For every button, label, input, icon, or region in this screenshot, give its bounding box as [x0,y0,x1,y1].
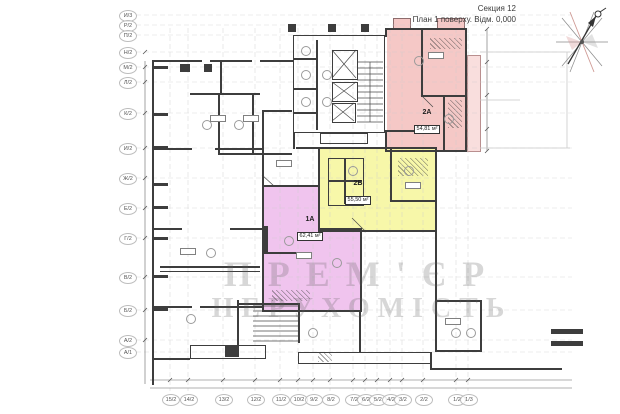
wall-segment [262,112,264,310]
apartment-area: 62,41 м² [297,232,324,241]
axis-label-left: В/2 [119,272,137,284]
room-area-box [276,160,292,167]
axis-label-left: Ж/2 [119,173,137,185]
axis-label-bottom: 13/2 [215,394,233,406]
wall-segment [230,228,262,230]
room-area-box [210,115,226,122]
wall-pier [152,237,168,240]
wall-segment [390,147,392,202]
axis-label-left: Л/2 [119,77,137,89]
axis-label-left: Г/2 [119,233,137,245]
elevator-shaft [332,82,358,102]
room-number-bubble [466,328,476,338]
room-number-bubble [308,328,318,338]
wall-pier [152,275,168,278]
room-number-bubble [301,70,311,80]
axis-label-left: М/2 [119,62,137,74]
wall-segment [210,60,252,62]
plan-subtitle: План 1 поверху. Відм. 0,000 [320,14,516,25]
room-number-bubble [206,248,216,258]
axis-label-left: Е/2 [119,203,137,215]
wall-pier [225,345,239,357]
wall-segment [218,93,220,155]
wall-pier [551,341,583,346]
wall-pier [152,66,168,69]
north-arrow-compass-icon [552,6,612,74]
wall-segment [293,58,316,60]
wall-segment [435,147,437,232]
axis-label-left: К/2 [119,108,137,120]
apartment-2b-label: 2Б 55,50 м² [340,180,376,206]
wall-segment [160,266,260,268]
room-number-bubble [414,56,424,66]
wall-segment [298,303,300,343]
apartment-1a-label: 1А 62,41 м² [292,216,328,242]
wall-pier [180,64,190,72]
wall-segment [385,150,467,152]
room-number-bubble [444,114,454,124]
wall-segment [390,200,437,202]
axis-label-bottom: 9/2 [305,394,323,406]
axis-label-bottom: 2/2 [415,394,433,406]
wall-segment [437,350,482,352]
axis-label-left: И/2 [119,143,137,155]
wall-pier [551,329,583,334]
corridor-wall [298,352,432,364]
wall-pier [152,183,168,186]
wall-segment [293,88,316,90]
wall-segment [480,300,482,352]
axis-label-bottom: 3/2 [394,394,412,406]
wall-segment [239,303,299,305]
wall-segment [152,358,190,360]
column [288,24,296,32]
room-number-bubble [301,46,311,56]
wall-segment [318,147,437,149]
wall-segment [260,60,293,62]
room-number-bubble [322,70,332,80]
wall-segment [262,310,362,312]
wall-segment [385,28,467,30]
apartment-id: 1А [292,216,328,224]
room-area-box [296,252,312,259]
wall-pier [262,226,268,252]
section-title: Секция 12 [320,3,516,14]
drawing-header: Секция 12 План 1 поверху. Відм. 0,000 [320,3,516,25]
wall-pier [152,206,168,209]
wall-segment [293,112,316,114]
wall-segment [252,93,254,155]
wall-segment [220,60,222,95]
room-number-bubble [301,97,311,107]
wall-segment [296,147,318,149]
wall-pier [204,64,212,72]
apartment-area: 55,50 м² [345,196,372,205]
wall-segment [359,310,361,352]
wall-segment [152,228,182,230]
axis-label-left: А/1 [119,347,137,359]
floor-plan-drawing: И/3 Р/2 П/2 Н/2 М/2 Л/2 К/2 И/2 Ж/2 Е/2 … [0,0,620,414]
apartment-2a-label: 2А 54,81 м² [409,109,445,135]
wall-segment [465,28,467,152]
wall-segment [318,230,437,232]
elevator-shaft [332,103,356,123]
room-area-box [243,115,259,122]
axis-label-left: А/2 [119,335,137,347]
room-number-bubble [404,166,414,176]
axis-label-bottom: 12/2 [247,394,265,406]
room-area-box [405,182,421,189]
apartment-area: 54,81 м² [414,125,441,134]
axis-label-bottom: 8/2 [322,394,340,406]
room-number-bubble [332,258,342,268]
wall-segment [152,306,192,308]
wall-segment [437,300,482,302]
wall-segment [237,300,239,346]
wall-segment [218,153,292,155]
wall-segment [293,133,295,149]
wall-segment [152,60,202,62]
axis-label-bottom: 11/2 [272,394,290,406]
room-number-bubble [186,314,196,324]
wall-segment [430,368,562,370]
wall-pier [152,113,168,116]
apartment-id: 2А [409,109,445,117]
wall-segment [215,148,262,150]
wall-segment [435,230,437,352]
wall-segment [190,93,260,95]
wall-segment [316,40,318,130]
axis-label-bottom: 14/2 [180,394,198,406]
room-area-box [428,52,444,59]
room-area-box [180,248,196,255]
wall-pier [152,308,168,311]
axis-label-left: П/2 [119,30,137,42]
wall-segment [262,185,320,187]
room-number-bubble [451,328,461,338]
axis-label-bottom: 15/2 [162,394,180,406]
core-vestibule [320,133,368,144]
room-area-box [445,318,461,325]
wall-segment [160,271,260,272]
apartment-id: 2Б [340,180,376,188]
wall-segment [262,110,292,112]
wall-segment [152,60,154,385]
wall-segment [152,148,192,150]
room-number-bubble [348,166,358,176]
elevator-shaft [332,50,358,80]
axis-label-left: Н/2 [119,47,137,59]
axis-label-left: Б/2 [119,305,137,317]
wall-segment [200,306,262,308]
wall-segment [360,228,362,312]
axis-label-bottom: 1/3 [460,394,478,406]
room-number-bubble [322,97,332,107]
